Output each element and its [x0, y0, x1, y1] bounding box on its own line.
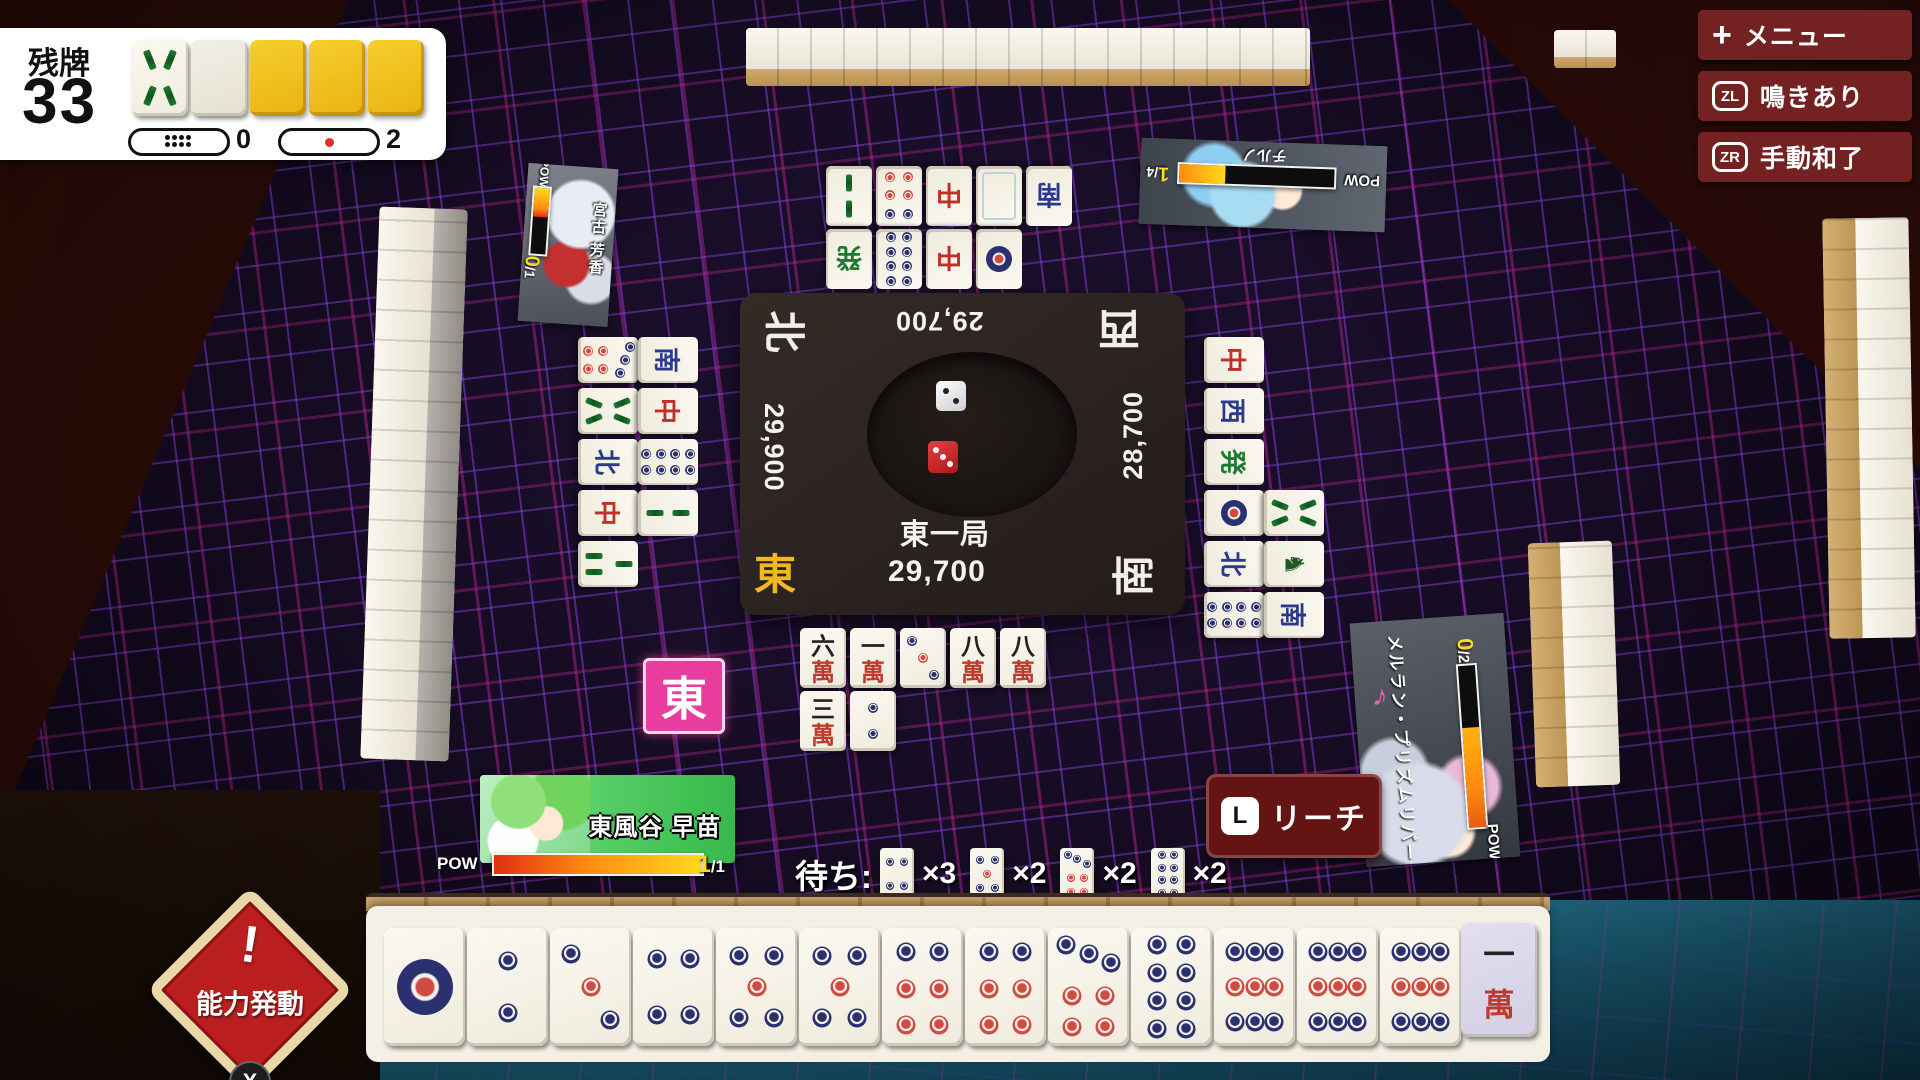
tile-face: 南 [638, 337, 698, 383]
tile-face: 一萬 [1461, 923, 1537, 1037]
tile-face: 一萬 [850, 628, 896, 688]
tile-7p[interactable] [1048, 928, 1129, 1046]
discard-pile-right: 中西発北♞南 [1212, 336, 1316, 639]
tile-back-gold [309, 40, 365, 116]
riichi-button[interactable]: L リーチ [1206, 774, 1382, 858]
ability-activate-button[interactable]: ! 能力発動 X [163, 903, 337, 1077]
wait-count: ×2 [1193, 857, 1227, 891]
tile-face [633, 928, 714, 1046]
tile-face [876, 229, 922, 289]
discard-row [586, 540, 690, 588]
tile-face [1204, 490, 1264, 536]
score-bottom: 29,700 [888, 555, 986, 589]
drawn-tile-slot: 一萬 [1461, 923, 1537, 1037]
wall-block-face [1554, 30, 1616, 57]
dora-indicator-tiles [132, 40, 424, 116]
tile-中: 中 [638, 388, 698, 434]
tile-5p[interactable] [799, 928, 880, 1046]
honba-count: 0 [236, 124, 251, 155]
riichi-button-label: リーチ [1271, 794, 1367, 838]
wall-right-near-face [1560, 541, 1621, 787]
tile-8p [876, 229, 922, 289]
tile-8p [1204, 592, 1264, 638]
player-top-ability: 1/4 [1146, 160, 1170, 184]
tile-back-gold [368, 40, 424, 116]
tile-face: 発 [1204, 439, 1264, 485]
tile-5p[interactable] [716, 928, 797, 1046]
tile-face [826, 166, 872, 226]
zr-key-icon: ZR [1712, 142, 1748, 172]
tile-face [799, 928, 880, 1046]
tile-4p[interactable] [633, 928, 714, 1046]
discard-row: 中 [586, 489, 690, 537]
player-right-ability: 0/2 [1452, 637, 1480, 664]
discard-row: 発 [1212, 438, 1316, 486]
player-left-pow-fill [533, 188, 550, 218]
wall-block-side [1554, 57, 1616, 68]
tile-1p [976, 229, 1022, 289]
tile-3p [900, 628, 946, 688]
tile-1p [1204, 490, 1264, 536]
discard-row: 六萬一萬八萬八萬 [800, 628, 1046, 688]
red-die [928, 441, 958, 473]
tile-face: 中 [638, 388, 698, 434]
tile-face [384, 928, 465, 1046]
tile-face: 中 [1204, 337, 1264, 383]
tile-3s [578, 541, 638, 587]
tile-face: 八萬 [1000, 628, 1046, 688]
tile-face: 南 [1264, 592, 1324, 638]
tile-8s [1264, 490, 1324, 536]
tile-face [467, 928, 548, 1046]
discard-row: 中 [1212, 336, 1316, 384]
tile-8s [578, 388, 638, 434]
tile-中: 中 [926, 229, 972, 289]
discard-pile-left: 南中北中 [586, 336, 690, 588]
discard-row: 西 [1212, 387, 1316, 435]
tile-face [900, 628, 946, 688]
ability-label: 能力発動 [196, 983, 304, 1022]
tile-8p [638, 439, 698, 485]
player-bottom-portrait [480, 775, 590, 863]
wall-top-side [746, 69, 1310, 86]
tile-2p[interactable] [467, 928, 548, 1046]
hand-tiles [384, 928, 1461, 1046]
tile-中: 中 [1204, 337, 1264, 383]
tile-face [850, 691, 896, 751]
menu-button-plus-key[interactable]: +メニュー [1698, 10, 1912, 60]
wall-right-near [1528, 541, 1620, 788]
wall-top-right-block [1554, 30, 1616, 68]
player-top-pow-fill [1179, 164, 1226, 184]
tile-9p[interactable] [1297, 928, 1378, 1046]
discard-row: 中 [586, 387, 690, 435]
dice-recess [867, 352, 1077, 517]
tile-face [550, 928, 631, 1046]
tile-face [578, 388, 638, 434]
tile-face [1264, 490, 1324, 536]
wall-right-far [1822, 217, 1915, 638]
player-bottom-ability: 1/1 [697, 851, 725, 879]
tile-9p[interactable] [1214, 928, 1295, 1046]
tile-6m: 六萬 [800, 628, 846, 688]
wind-bottom-dealer: 東 [754, 541, 796, 602]
tile-face: 北 [1204, 541, 1264, 587]
score-top: 29,700 [895, 305, 984, 336]
tile-北: 北 [578, 439, 638, 485]
tile-face: 八萬 [950, 628, 996, 688]
wind-top: 西 [1098, 301, 1140, 362]
wait-count: ×2 [1012, 857, 1046, 891]
tile-face [1380, 928, 1461, 1046]
tile-face [876, 166, 922, 226]
tile-face [965, 928, 1046, 1046]
tile-6p[interactable] [882, 928, 963, 1046]
menu-button-label: メニュー [1744, 17, 1848, 53]
menu-button-label: 鳴きあり [1760, 78, 1864, 114]
tile-face: 中 [578, 490, 638, 536]
tile-発: 発 [1204, 439, 1264, 485]
tile-発: 発 [826, 229, 872, 289]
tile-face [132, 40, 188, 116]
score-right: 28,700 [1118, 391, 1149, 480]
tile-8p[interactable] [1131, 928, 1212, 1046]
tile-南: 南 [1026, 166, 1072, 226]
discard-row: 南 [1212, 591, 1316, 639]
player-top-pow-label: POW [1344, 170, 1380, 188]
wait-count: ×2 [1102, 857, 1136, 891]
tile-9p[interactable] [1380, 928, 1461, 1046]
tile-face: 北 [578, 439, 638, 485]
riichi-sticks-count: 2 [386, 124, 401, 155]
tile-白 [976, 166, 1022, 226]
tile-face [578, 541, 638, 587]
tile-face: 南 [1026, 166, 1072, 226]
discard-row: 北 [586, 438, 690, 486]
discard-row: 中南 [826, 166, 1072, 226]
tile-face: 西 [1204, 388, 1264, 434]
riichi-stick-icon [278, 128, 380, 156]
discard-row: 南 [586, 336, 690, 384]
tile-1s: ♞ [1264, 541, 1324, 587]
wait-count: ×3 [922, 857, 956, 891]
tile-中: 中 [578, 490, 638, 536]
player-top-pow-bar [1177, 162, 1337, 190]
menu-button-label: 手動和了 [1760, 139, 1864, 175]
wall-right-far-face [1855, 217, 1916, 638]
tile-6p [876, 166, 922, 226]
menu-button-zl-key[interactable]: ZL鳴きあり [1698, 71, 1912, 121]
tile-2s [826, 166, 872, 226]
discard-pile-bottom: 六萬一萬八萬八萬三萬 [800, 628, 1046, 751]
remaining-count: 33 [22, 64, 97, 138]
tile-face [1297, 928, 1378, 1046]
zl-key-icon: ZL [1712, 81, 1748, 111]
player-panel-top: チルノ 1/4 POW [1139, 138, 1388, 233]
score-left: 29,900 [758, 403, 789, 492]
tile-face: 中 [926, 166, 972, 226]
tile-face: 六萬 [800, 628, 846, 688]
wind-left: 北 [757, 310, 818, 352]
game-stage: 北 29,700 西 29,900 28,700 東 東一局 29,700 南 … [0, 0, 1920, 1080]
tile-face: 三萬 [800, 691, 846, 751]
tile-face: 中 [926, 229, 972, 289]
player-panel-bottom: 東風谷 早苗 [480, 775, 735, 863]
tile-8s [132, 40, 188, 116]
tile-3m: 三萬 [800, 691, 846, 751]
tile-face [1214, 928, 1295, 1046]
tile-face [976, 229, 1022, 289]
tile-2p [850, 691, 896, 751]
player-bottom-pow-row: POW 1/1 [437, 851, 743, 877]
tile-back-gold [250, 40, 306, 116]
tile-3p[interactable] [550, 928, 631, 1046]
white-die [936, 381, 966, 411]
tile-face [1131, 928, 1212, 1046]
tile-1p[interactable] [384, 928, 465, 1046]
waits-label: 待ち: [795, 850, 872, 898]
center-score-board: 北 29,700 西 29,900 28,700 東 東一局 29,700 南 [740, 293, 1185, 615]
tile-2s [638, 490, 698, 536]
player-bottom-pow-fill [494, 855, 702, 874]
tile-南: 南 [638, 337, 698, 383]
tile-北: 北 [1204, 541, 1264, 587]
player-panel-left: POW 0/1 宮古 芳香 [518, 163, 619, 327]
tile-face: 発 [826, 229, 872, 289]
tile-face [638, 490, 698, 536]
discard-row: 発中 [826, 229, 1072, 289]
wind-right: 南 [1101, 554, 1162, 596]
wall-top-face [746, 28, 1310, 69]
tile-face [1204, 592, 1264, 638]
tile-8m: 八萬 [950, 628, 996, 688]
tile-中: 中 [926, 166, 972, 226]
discard-row: 北♞ [1212, 540, 1316, 588]
tile-1m[interactable]: 一萬 [1461, 923, 1537, 1037]
wall-top [746, 28, 1310, 86]
player-bottom-pow-label: POW [437, 854, 478, 874]
l-key-icon: L [1221, 797, 1259, 835]
player-bottom-name: 東風谷 早苗 [588, 807, 721, 842]
tile-face [1048, 928, 1129, 1046]
player-bottom-pow-bar [492, 853, 704, 876]
tile-face [578, 337, 638, 383]
tile-1m: 一萬 [850, 628, 896, 688]
player-right-pow-label: POW [1484, 823, 1503, 860]
round-wind-marker-text: 東 [661, 663, 707, 729]
player-left-pow-label: POW [536, 163, 552, 188]
tile-back-white [191, 40, 247, 116]
tile-西: 西 [1204, 388, 1264, 434]
tile-face [982, 172, 1016, 220]
tile-6p[interactable] [965, 928, 1046, 1046]
tile-face: ♞ [1264, 541, 1324, 587]
tile-face [716, 928, 797, 1046]
menu-button-group: +メニューZL鳴きありZR手動和了 [1698, 10, 1912, 182]
discard-row [1212, 489, 1316, 537]
round-wind-marker: 東 [643, 658, 725, 734]
honba-dots [165, 135, 193, 149]
round-label: 東一局 [900, 511, 990, 553]
discard-row: 三萬 [800, 691, 1046, 751]
discard-pile-top: 中南発中 [826, 166, 1072, 289]
tile-face [882, 928, 963, 1046]
honba-stick-icon [128, 128, 230, 156]
tile-南: 南 [1264, 592, 1324, 638]
menu-button-zr-key[interactable]: ZR手動和了 [1698, 132, 1912, 182]
tile-face [638, 439, 698, 485]
player-left-ability: 0/1 [519, 255, 544, 279]
tile-7p [578, 337, 638, 383]
remaining-tiles-panel: 残牌 33 0 2 [0, 28, 446, 160]
tile-8m: 八萬 [1000, 628, 1046, 688]
